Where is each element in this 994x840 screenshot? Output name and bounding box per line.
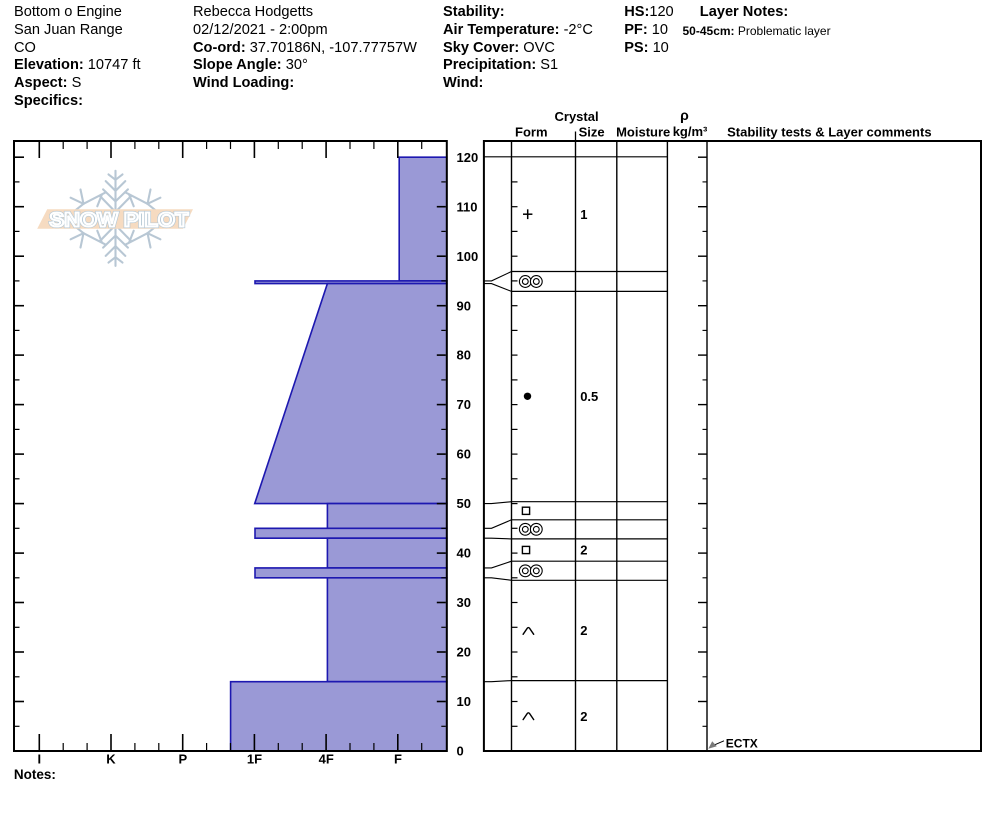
svg-text:50: 50	[457, 496, 471, 511]
svg-text:2: 2	[580, 543, 587, 558]
svg-text:20: 20	[457, 645, 471, 660]
svg-text:80: 80	[457, 348, 471, 363]
svg-text:90: 90	[457, 298, 471, 313]
svg-text:0.5: 0.5	[580, 389, 598, 404]
svg-text:2: 2	[580, 623, 587, 638]
svg-text:ρ: ρ	[680, 107, 689, 123]
svg-text:kg/m³: kg/m³	[673, 124, 708, 139]
svg-text:110: 110	[457, 199, 478, 214]
svg-text:Form: Form	[515, 125, 548, 140]
svg-text:1: 1	[580, 207, 587, 222]
svg-text:10: 10	[457, 694, 471, 709]
svg-text:F: F	[394, 752, 402, 767]
svg-text:40: 40	[457, 546, 471, 561]
svg-text:4F: 4F	[319, 752, 334, 767]
svg-text:ECTX: ECTX	[726, 736, 758, 750]
svg-text:I: I	[37, 752, 41, 767]
svg-text:Size: Size	[579, 125, 605, 140]
svg-text:70: 70	[457, 397, 471, 412]
svg-text:30: 30	[457, 595, 471, 610]
svg-text:1F: 1F	[247, 752, 262, 767]
svg-text:Notes:: Notes:	[14, 767, 56, 782]
svg-text:100: 100	[457, 249, 479, 264]
svg-text:SNOW PILOT: SNOW PILOT	[50, 209, 190, 232]
svg-text:Crystal: Crystal	[555, 109, 599, 124]
svg-text:2: 2	[580, 709, 587, 724]
svg-text:0: 0	[457, 744, 464, 759]
svg-text:60: 60	[457, 447, 471, 462]
svg-text:P: P	[178, 752, 187, 767]
svg-text:K: K	[106, 752, 116, 767]
svg-text:Stability tests & Layer commen: Stability tests & Layer comments	[727, 125, 931, 140]
svg-text:Moisture: Moisture	[616, 125, 670, 140]
svg-text:120: 120	[457, 150, 479, 165]
